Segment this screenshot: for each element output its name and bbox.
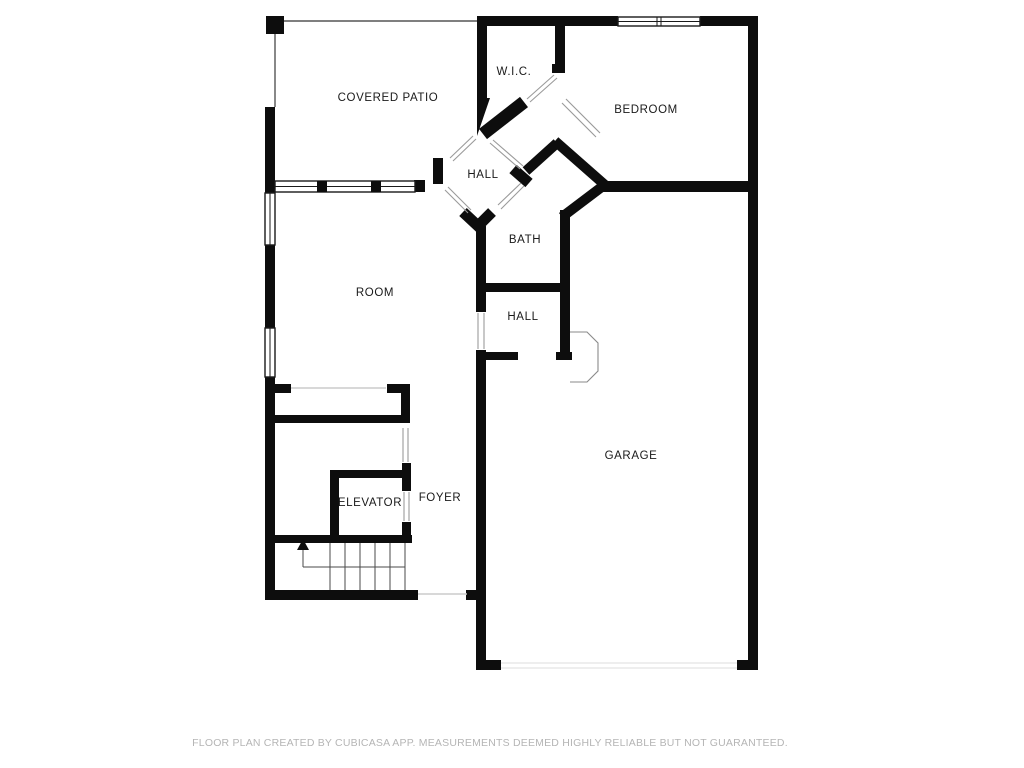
room-label-wic: W.I.C.: [497, 66, 532, 78]
room-label-foyer: FOYER: [419, 492, 462, 504]
garage-entry-door-swing: [570, 332, 598, 382]
patio-corner-post: [266, 16, 284, 34]
walls: [265, 16, 758, 670]
room-label-room: ROOM: [356, 287, 394, 299]
room-label-bedroom: BEDROOM: [614, 104, 678, 116]
staircase: [297, 539, 405, 590]
room-label-bath: BATH: [509, 234, 541, 246]
door-openings: [291, 75, 737, 668]
room-label-garage: GARAGE: [605, 450, 658, 462]
room-label-hall-upper: HALL: [467, 169, 498, 181]
room-label-covered-patio: COVERED PATIO: [338, 92, 439, 104]
floor-plan-page: COVERED PATIO W.I.C. BEDROOM HALL BATH H…: [0, 0, 1024, 768]
floor-plan-drawing: COVERED PATIO W.I.C. BEDROOM HALL BATH H…: [0, 0, 1024, 768]
room-label-elevator: ELEVATOR: [338, 497, 402, 509]
footer-disclaimer: FLOOR PLAN CREATED BY CUBICASA APP. MEAS…: [192, 737, 788, 749]
room-label-hall-lower: HALL: [507, 311, 538, 323]
